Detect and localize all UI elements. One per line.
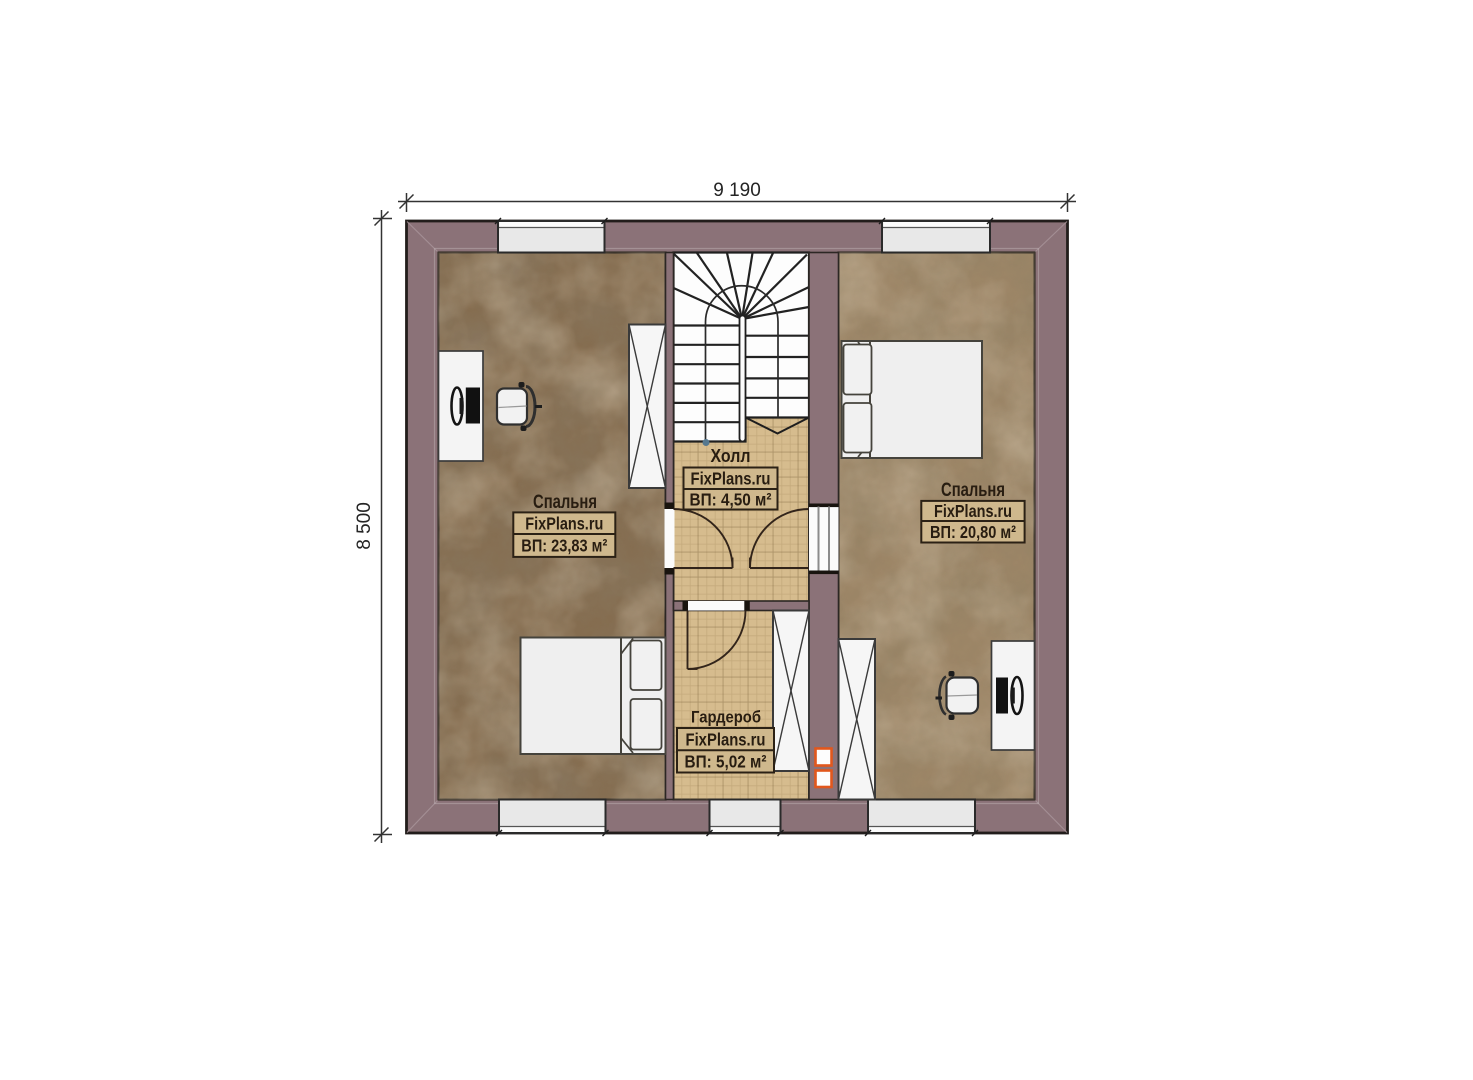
svg-text:ВП: 23,83 м²: ВП: 23,83 м² — [521, 536, 607, 556]
svg-text:FixPlans.ru: FixPlans.ru — [691, 469, 771, 489]
svg-text:ВП: 20,80 м²: ВП: 20,80 м² — [930, 522, 1016, 542]
svg-text:ВП: 5,02 м²: ВП: 5,02 м² — [685, 752, 767, 772]
svg-text:Спальня: Спальня — [533, 492, 597, 513]
svg-text:9 190: 9 190 — [713, 180, 761, 201]
svg-text:FixPlans.ru: FixPlans.ru — [525, 514, 603, 534]
svg-text:FixPlans.ru: FixPlans.ru — [934, 501, 1012, 521]
svg-text:8 500: 8 500 — [354, 502, 375, 550]
svg-text:ВП: 4,50 м²: ВП: 4,50 м² — [690, 490, 772, 510]
svg-text:Гардероб: Гардероб — [691, 708, 761, 727]
svg-text:Спальня: Спальня — [941, 480, 1005, 501]
svg-text:FixPlans.ru: FixPlans.ru — [686, 730, 766, 750]
svg-text:Холл: Холл — [711, 445, 751, 466]
